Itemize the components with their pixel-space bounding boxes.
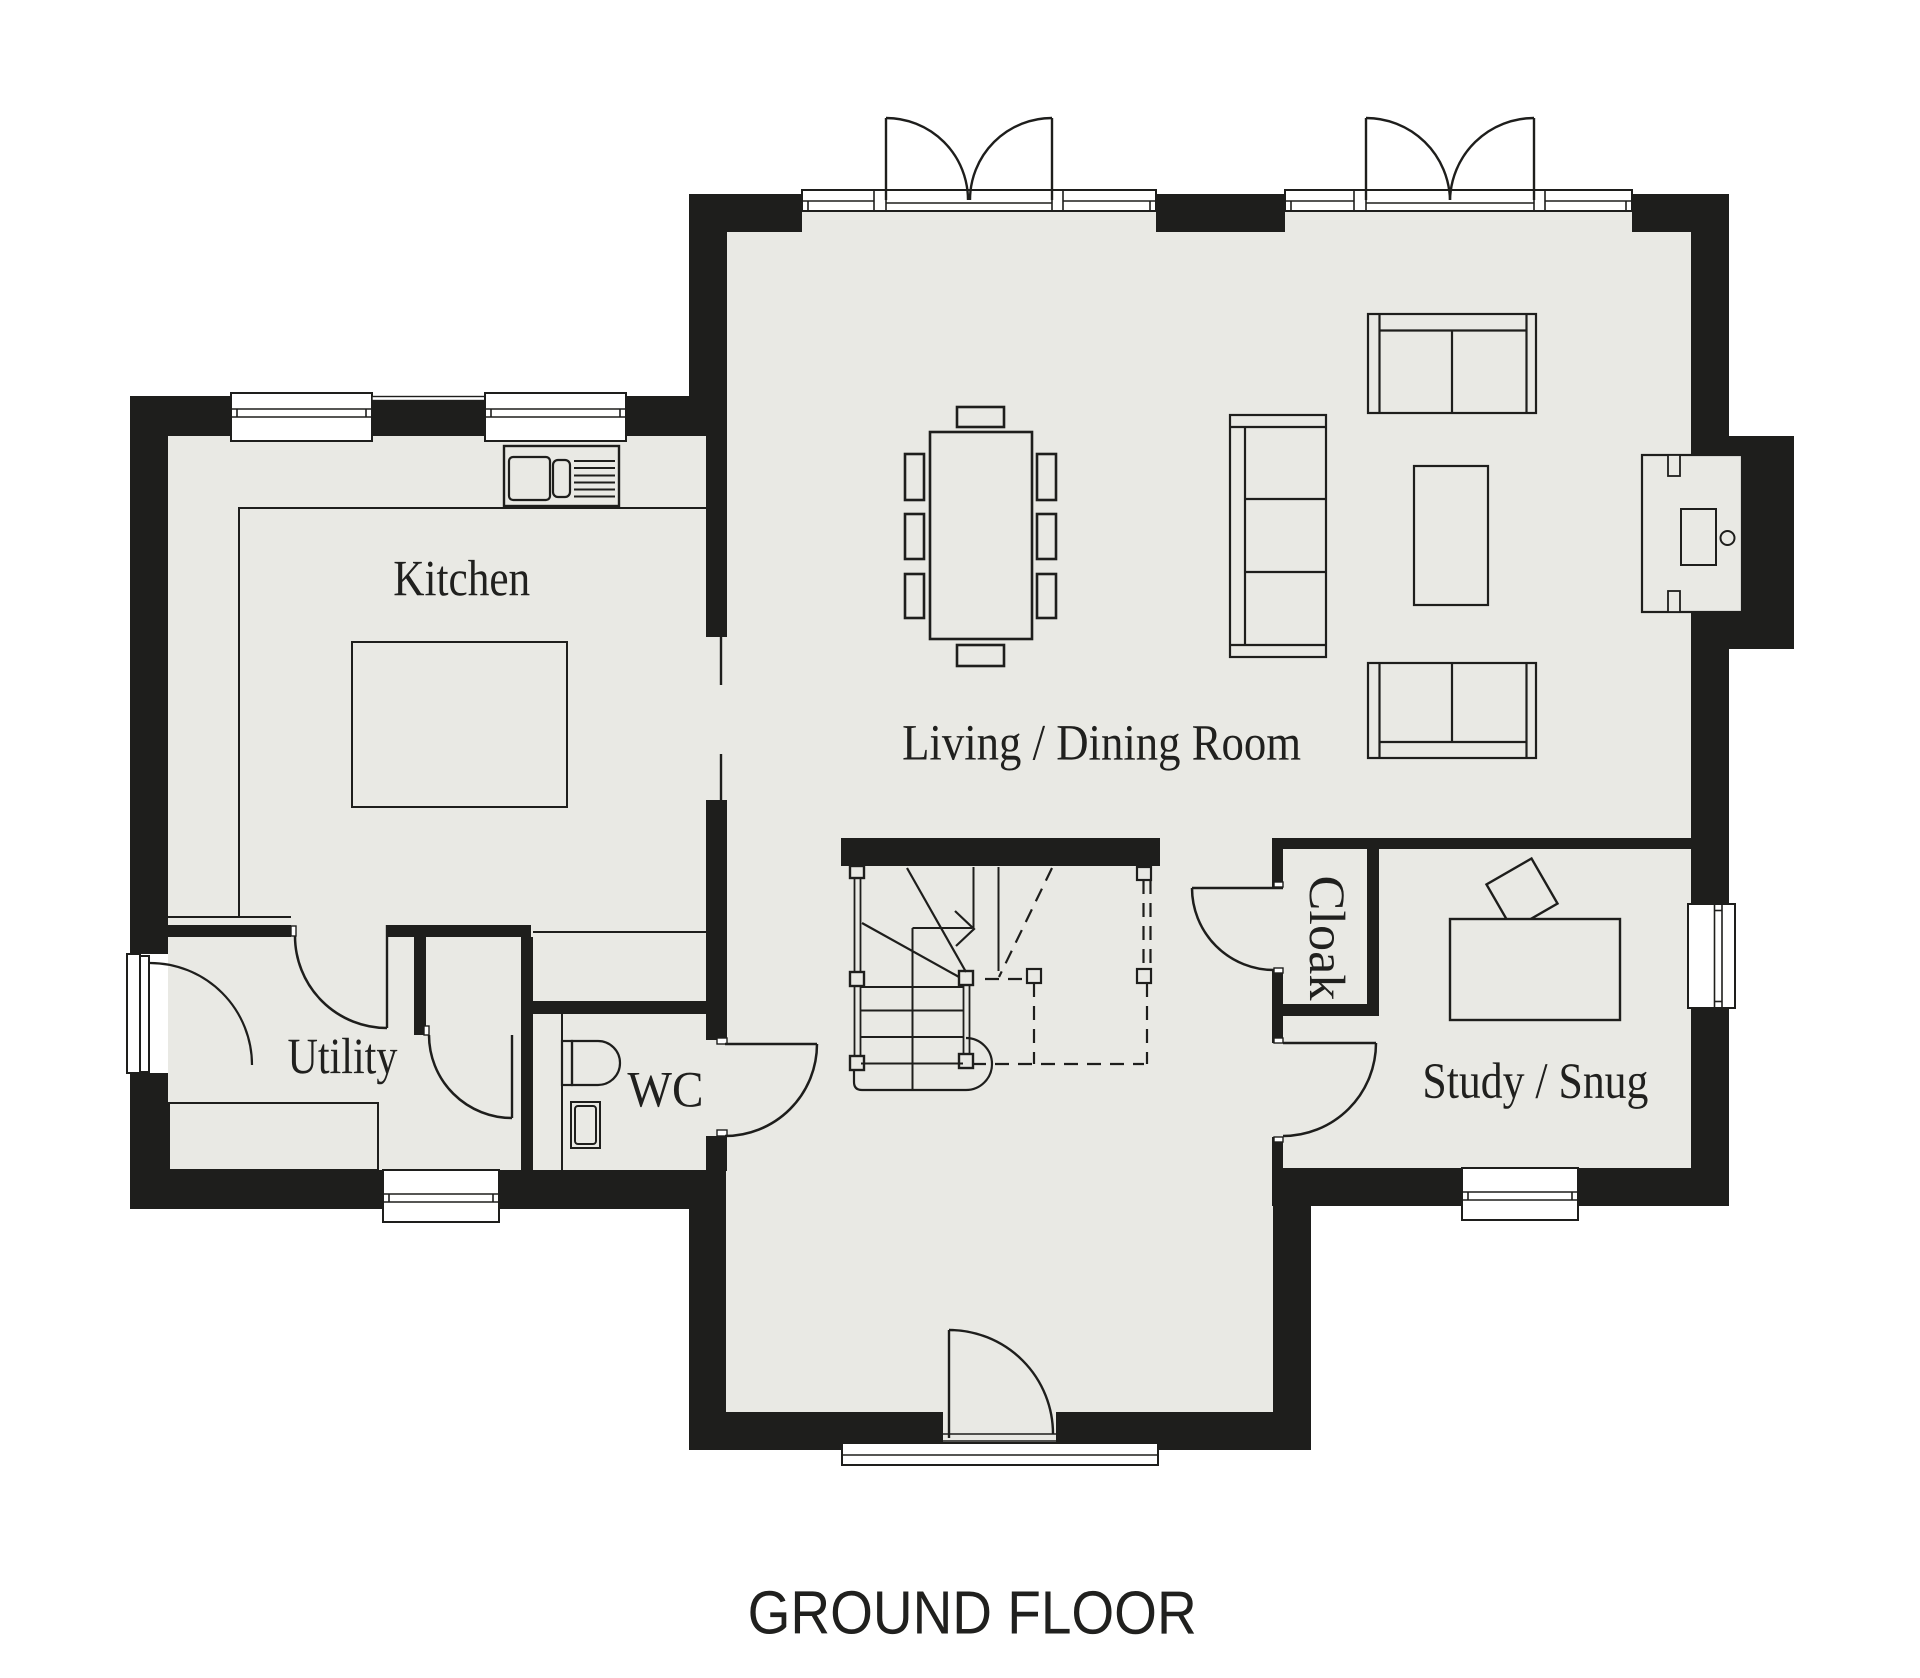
svg-text:Living / Dining Room: Living / Dining Room: [902, 715, 1301, 771]
svg-text:Kitchen: Kitchen: [393, 551, 530, 607]
svg-text:Utility: Utility: [287, 1029, 397, 1085]
svg-text:Study / Snug: Study / Snug: [1422, 1054, 1648, 1110]
svg-text:Cloak: Cloak: [1298, 875, 1354, 1001]
svg-text:WC: WC: [627, 1062, 703, 1118]
svg-text:GROUND FLOOR: GROUND FLOOR: [748, 1578, 1197, 1646]
